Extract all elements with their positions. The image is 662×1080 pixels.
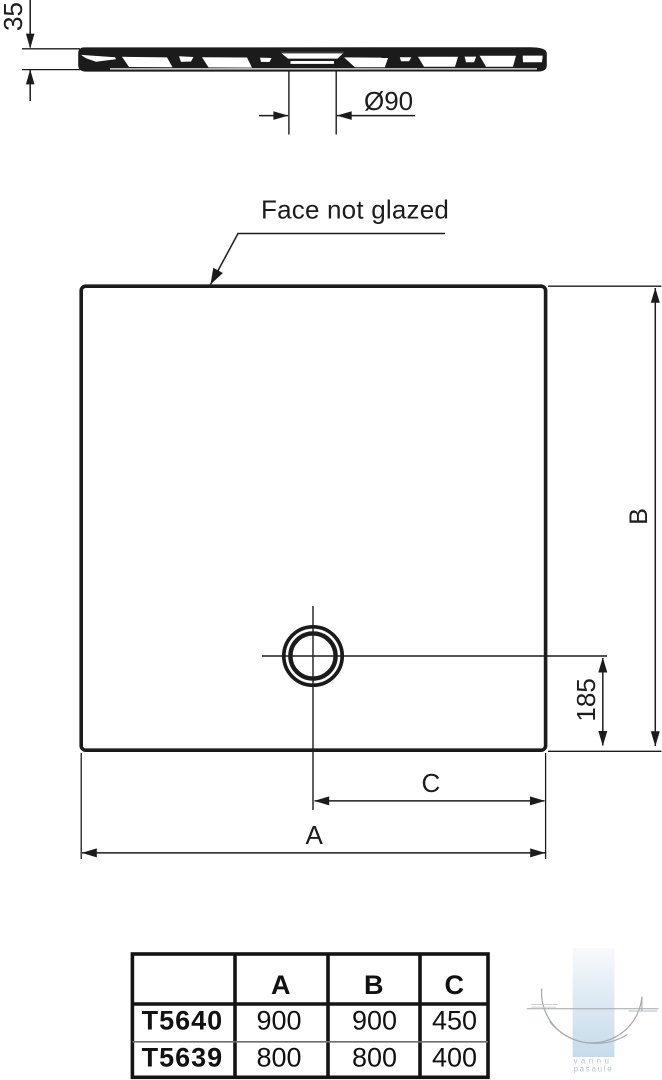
svg-text:800: 800 [257,1042,302,1072]
svg-text:800: 800 [352,1042,397,1072]
svg-text:B: B [625,508,653,525]
svg-text:450: 450 [432,1006,477,1036]
svg-text:B: B [364,970,384,1000]
svg-text:T5640: T5640 [142,1006,224,1036]
svg-text:900: 900 [352,1006,397,1036]
svg-text:Face not glazed: Face not glazed [261,195,449,225]
svg-text:35: 35 [0,2,28,31]
svg-text:A: A [306,820,324,850]
svg-text:pasaule: pasaule [574,1064,614,1073]
svg-text:C: C [445,970,465,1000]
svg-text:T5639: T5639 [142,1042,224,1072]
svg-text:C: C [422,768,441,798]
svg-text:A: A [271,970,291,1000]
svg-text:185: 185 [571,678,601,721]
svg-text:900: 900 [257,1006,302,1036]
svg-text:Ø90: Ø90 [364,86,413,116]
svg-text:400: 400 [432,1042,477,1072]
